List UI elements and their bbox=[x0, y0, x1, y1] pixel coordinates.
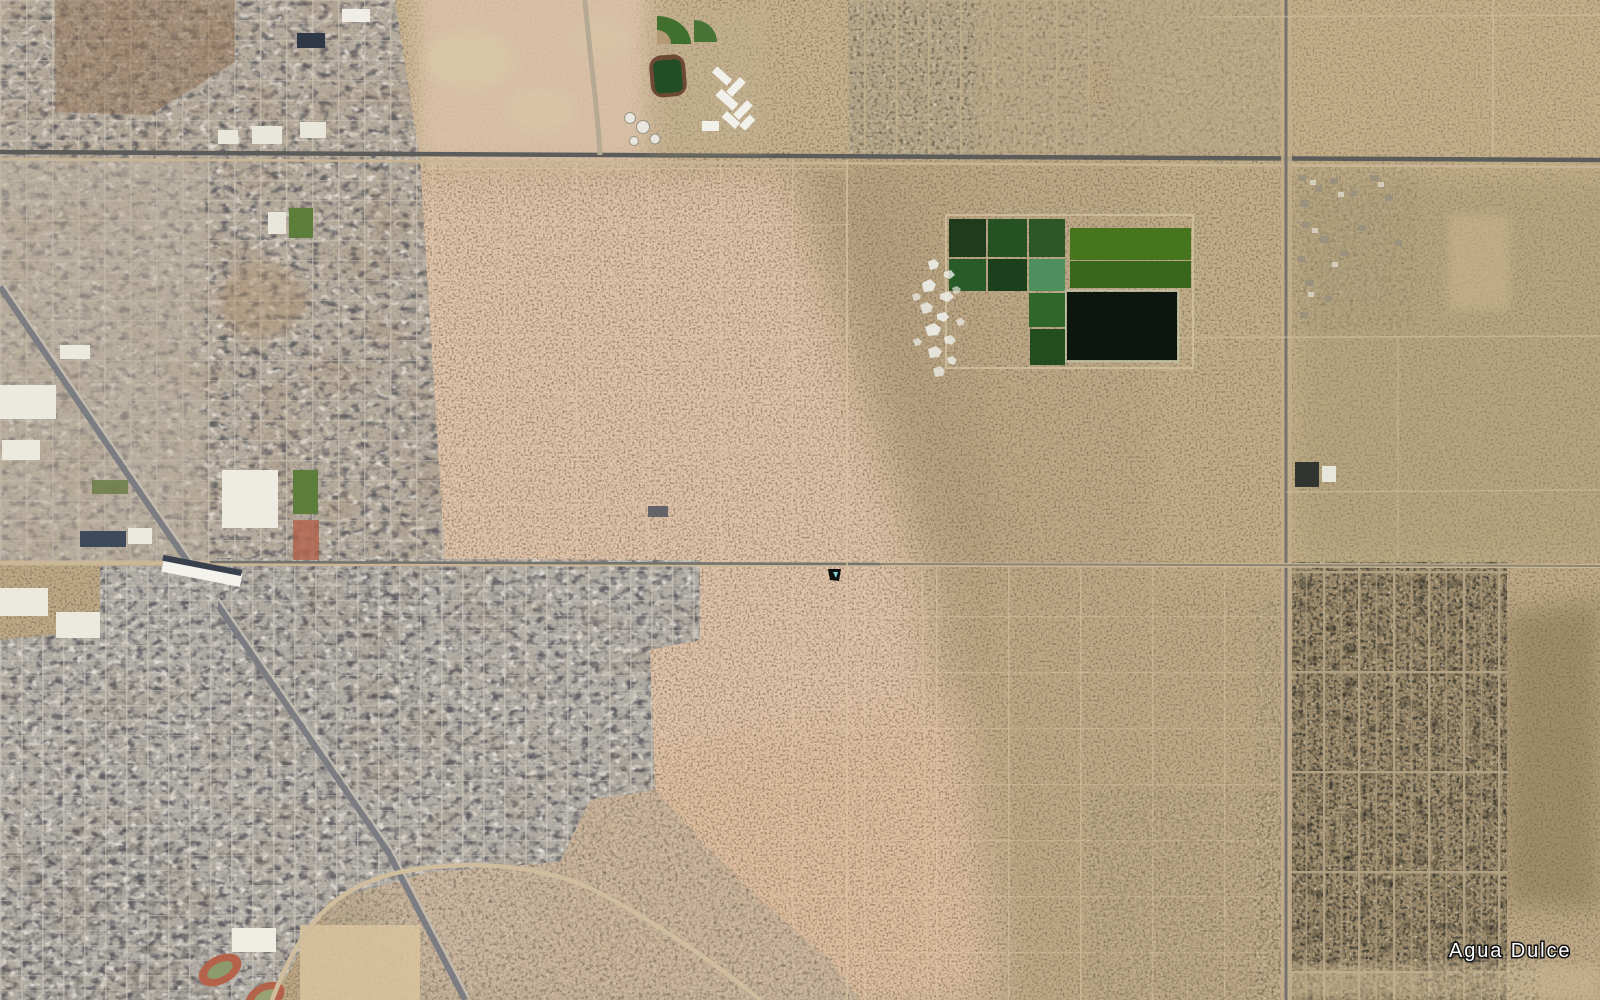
svg-text:Agua Dulce: Agua Dulce bbox=[1449, 940, 1571, 962]
